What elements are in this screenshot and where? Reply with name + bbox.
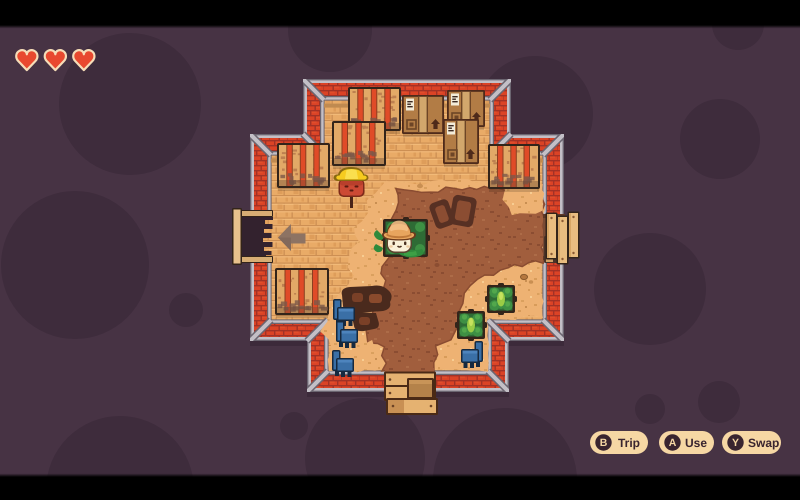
svg-text:B: B: [600, 437, 608, 449]
svg-text:A: A: [669, 437, 677, 449]
svg-text:Y: Y: [732, 437, 739, 449]
svg-text:Use: Use: [685, 436, 707, 450]
svg-text:Swap: Swap: [748, 436, 779, 450]
svg-text:Trip: Trip: [618, 436, 640, 450]
